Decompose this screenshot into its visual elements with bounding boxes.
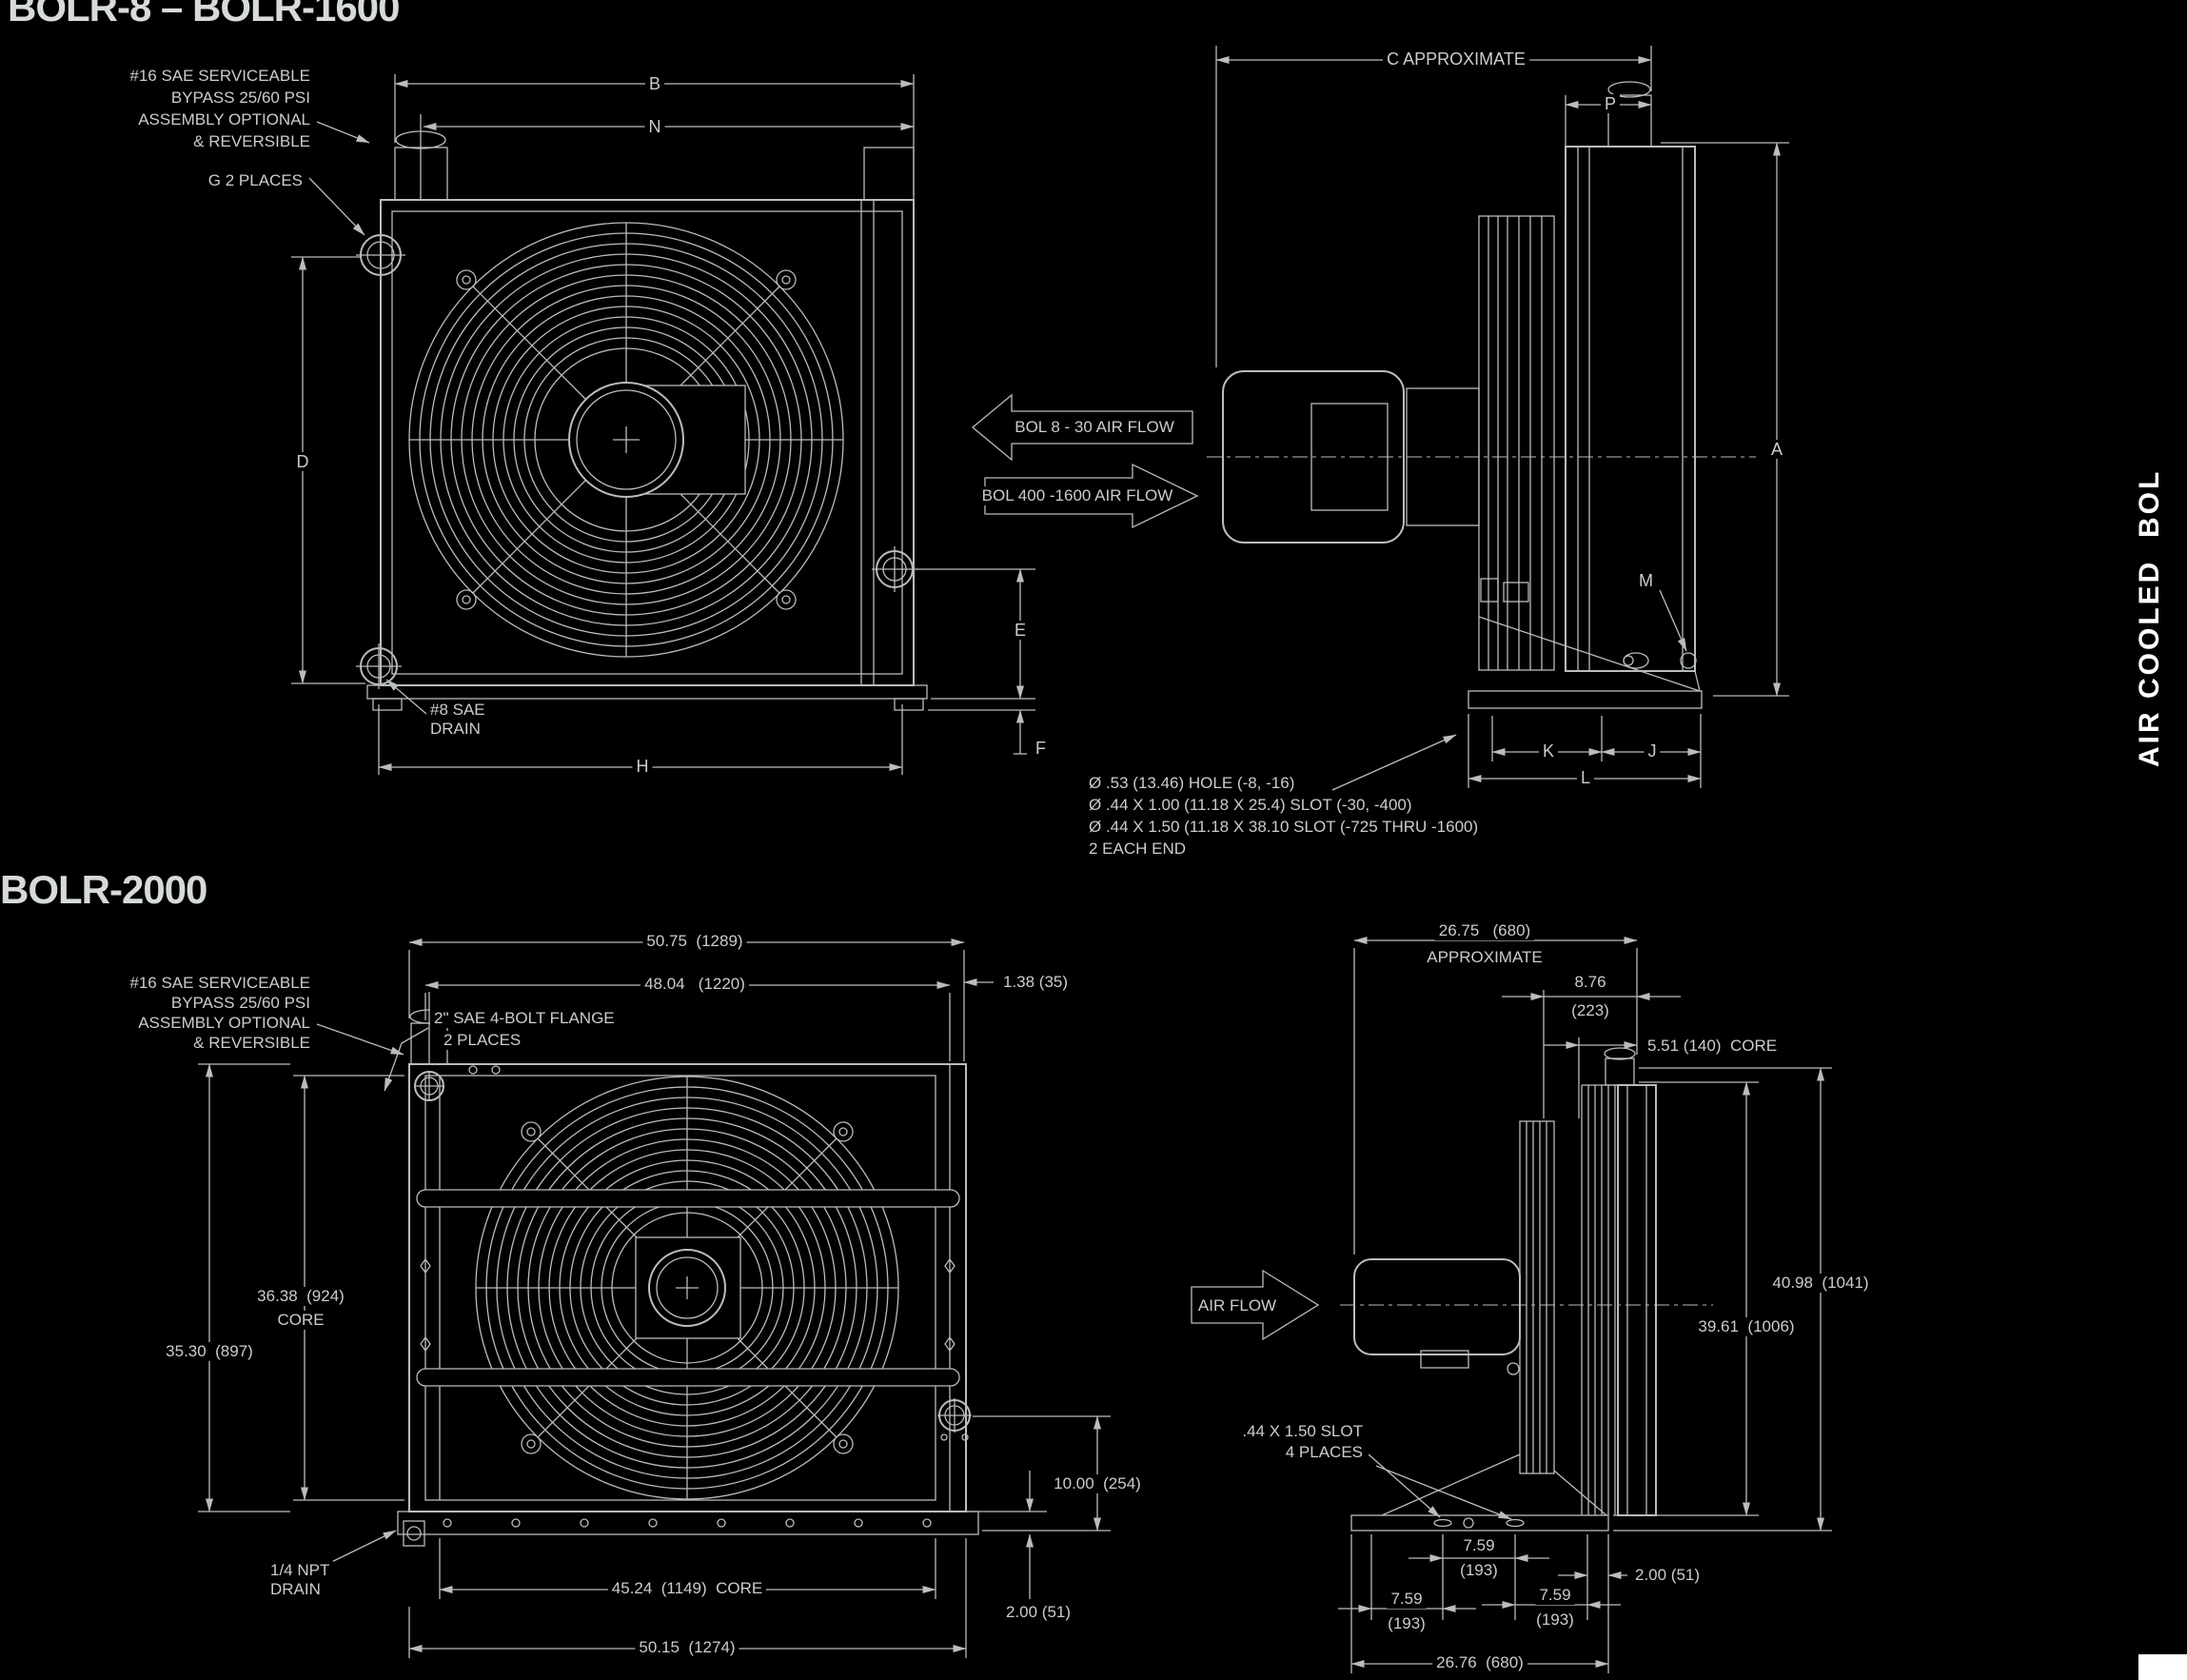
dim-leg: 10.00 (254) — [1050, 1474, 1145, 1493]
dim-width-overall: 50.75 (1289) — [642, 932, 746, 951]
dim-d: D — [293, 452, 313, 471]
dim-depth: 26.75 (680) — [1435, 921, 1534, 940]
port-bottom-right — [872, 546, 917, 592]
dim-n: N — [645, 117, 665, 136]
support-bar-lower — [417, 1369, 959, 1386]
airflow2-label: AIR FLOW — [1194, 1296, 1280, 1315]
dim-motor: 8.76 — [1570, 973, 1609, 992]
dim-m: M — [1635, 571, 1657, 590]
bypass2-note-line3: ASSEMBLY OPTIONAL — [134, 1014, 314, 1033]
mounting-base-2000 — [1351, 1515, 1608, 1531]
dim-c-approximate: C APPROXIMATE — [1383, 49, 1529, 69]
dim-j: J — [1645, 741, 1661, 761]
page-title-bolr8: BOLR-8 – BOLR-1600 — [8, 0, 399, 17]
hole-note-line2: Ø .44 X 1.00 (11.18 X 25.4) SLOT (-30, -… — [1085, 796, 1416, 815]
port-top-left — [356, 230, 405, 280]
bypass-note-line4: & REVERSIBLE — [189, 132, 314, 151]
mounting-base — [1468, 691, 1702, 708]
support-bar-upper — [417, 1190, 959, 1207]
fan-grill — [409, 223, 843, 657]
slot-note-line1: .44 X 1.50 SLOT — [1238, 1422, 1367, 1441]
dim-base-width: 26.76 (680) — [1432, 1653, 1527, 1672]
motor-side-2000 — [1354, 1259, 1520, 1354]
drain-note-line2: DRAIN — [426, 720, 484, 739]
dim-height: 35.30 (897) — [162, 1342, 257, 1361]
bypass-note-line2: BYPASS 25/60 PSI — [167, 89, 314, 108]
dim-foot2b: (193) — [1384, 1614, 1429, 1633]
bypass-note-line1: #16 SAE SERVICEABLE — [126, 67, 314, 86]
dim-base: 2.00 (51) — [1002, 1603, 1074, 1622]
dim-foot3: 7.59 — [1535, 1586, 1574, 1605]
dim-a: A — [1767, 440, 1786, 459]
flange-note-line1: 2" SAE 4-BOLT FLANGE — [430, 1009, 619, 1028]
bolr8-side-view — [1207, 46, 1789, 790]
g-places-note: G 2 PLACES — [205, 171, 306, 190]
page-title-bolr2000: BOLR-2000 — [0, 880, 207, 899]
airflow-left-label: BOL 8 - 30 AIR FLOW — [1011, 418, 1178, 437]
dim-k: K — [1539, 741, 1558, 761]
dim-motor2: (223) — [1567, 1001, 1613, 1020]
dim-foot3b: (193) — [1532, 1611, 1578, 1630]
dim-h: H — [633, 757, 653, 776]
bypass2-note-line2: BYPASS 25/60 PSI — [167, 994, 314, 1013]
drain2-note-line1: 1/4 NPT — [266, 1561, 333, 1580]
dim-core-width: 45.24 (1149) CORE — [608, 1579, 766, 1598]
bolr8-front-view — [291, 74, 1035, 775]
hole-note-line3: Ø .44 X 1.50 (11.18 X 38.10 SLOT (-725 T… — [1085, 818, 1482, 837]
hole-note-line4: 2 EACH END — [1085, 840, 1190, 859]
airflow-right-label: BOL 400 -1600 AIR FLOW — [978, 486, 1177, 505]
flange-note-line2: 2 PLACES — [440, 1031, 524, 1050]
core-side-2000 — [1582, 1085, 1656, 1515]
dim-core-height: 36.38 (924) — [253, 1287, 348, 1306]
dim-core-depth: 5.51 (140) CORE — [1644, 1037, 1781, 1056]
dim-l: L — [1577, 768, 1594, 787]
dim-depth-approx: APPROXIMATE — [1423, 948, 1547, 967]
vertical-section-label: AIR COOLED BOL — [2134, 469, 2166, 767]
dim-edge: 2.00 (51) — [1631, 1566, 1704, 1585]
bolr8-side-dimensions — [1216, 46, 1789, 790]
catalog-page: BOLR-8 – BOLR-1600 #16 SAE SERVICEABLE B… — [0, 0, 2187, 1680]
hole-note-line1: Ø .53 (13.46) HOLE (-8, -16) — [1085, 774, 1298, 793]
slot-note-line2: 4 PLACES — [1282, 1443, 1367, 1462]
drain2-note-line2: DRAIN — [266, 1580, 325, 1599]
dim-p: P — [1601, 94, 1620, 113]
dim-offset: 1.38 (35) — [999, 973, 1072, 992]
dim-foot1: 7.59 — [1459, 1536, 1498, 1555]
dim-core-height-label: CORE — [273, 1311, 327, 1330]
dim-b: B — [645, 74, 664, 93]
dim-foot1b: (193) — [1456, 1561, 1502, 1580]
page-corner-tab — [2138, 1654, 2187, 1680]
dim-width-bottom: 50.15 (1274) — [635, 1638, 739, 1657]
bypass2-note-line4: & REVERSIBLE — [189, 1034, 314, 1053]
fan-guard-side-2000 — [1520, 1121, 1554, 1473]
airflow-arrows — [973, 395, 1197, 527]
port-bottom-left-drain — [356, 643, 402, 689]
dim-width-inner: 48.04 (1220) — [640, 975, 749, 994]
dim-foot2: 7.59 — [1387, 1590, 1426, 1609]
dim-height-overall: 40.98 (1041) — [1768, 1274, 1872, 1293]
bypass-note-line3: ASSEMBLY OPTIONAL — [134, 110, 314, 129]
drain-note-line1: #8 SAE — [426, 701, 489, 720]
bypass2-note-line1: #16 SAE SERVICEABLE — [126, 974, 314, 993]
dim-e: E — [1011, 621, 1030, 640]
dim-height-core: 39.61 (1006) — [1694, 1317, 1798, 1336]
drain-fitting — [404, 1521, 424, 1546]
dim-f: F — [1032, 739, 1050, 758]
